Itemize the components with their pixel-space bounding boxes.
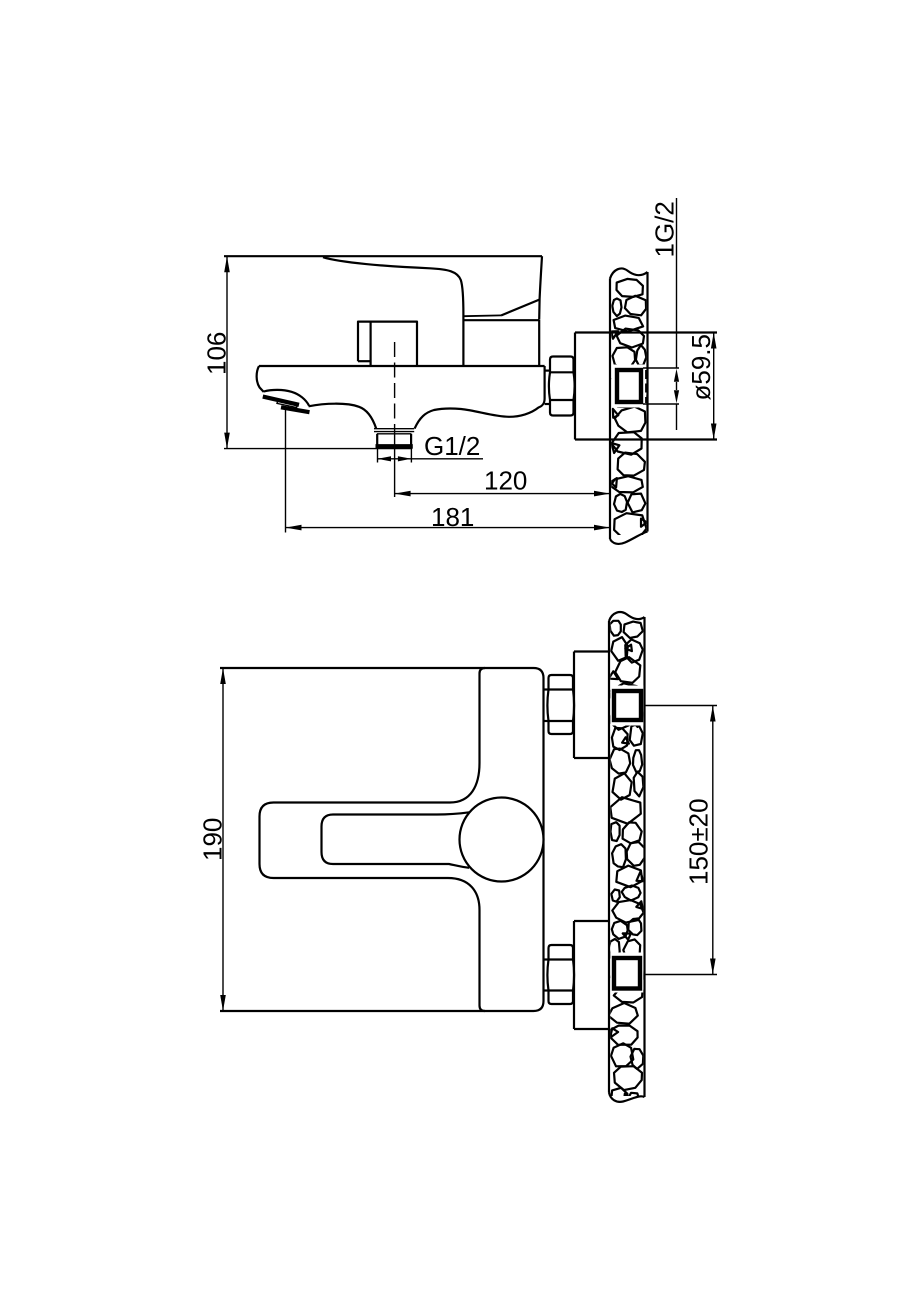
svg-text:190: 190 [198, 818, 228, 861]
svg-text:1G/2: 1G/2 [650, 201, 680, 257]
svg-text:120: 120 [484, 466, 527, 496]
svg-text:G1/2: G1/2 [424, 431, 480, 461]
svg-text:ø59.5: ø59.5 [686, 334, 716, 401]
svg-text:106: 106 [202, 332, 232, 375]
svg-text:181: 181 [431, 502, 474, 532]
svg-text:150±20: 150±20 [684, 798, 714, 885]
